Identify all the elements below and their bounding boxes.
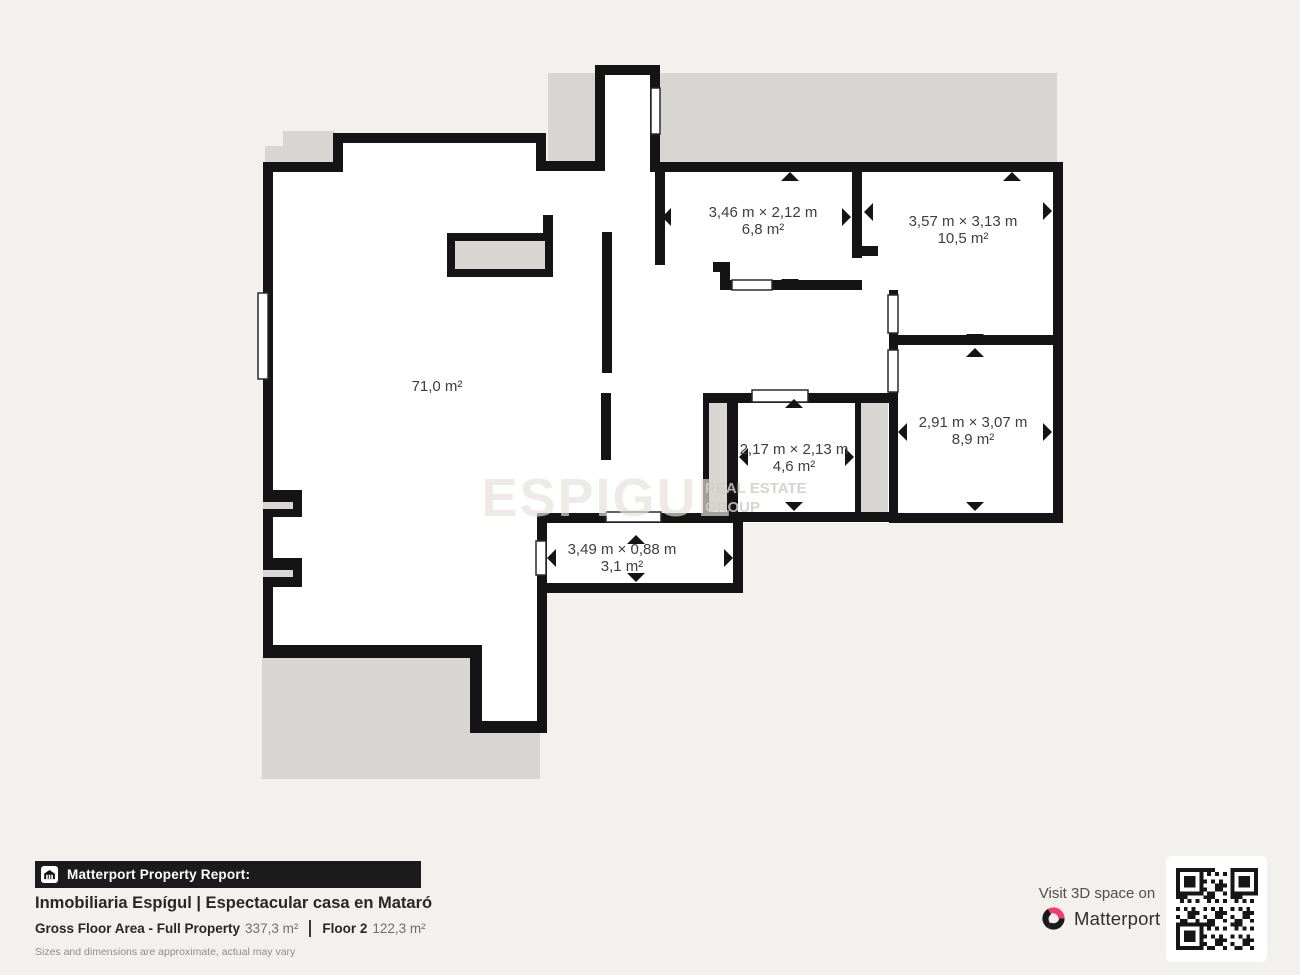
report-header-bar: Matterport Property Report: (35, 861, 421, 888)
gross-area-label: Gross Floor Area - Full Property (35, 921, 240, 936)
room-area: 10,5 m² (938, 230, 989, 247)
property-title: Inmobiliaria Espígul | Espectacular casa… (35, 894, 432, 913)
room-dimensions: 3,46 m × 2,12 m (709, 204, 818, 221)
floor-value: 122,3 m² (372, 921, 425, 936)
room-dimensions: 3,57 m × 3,13 m (909, 213, 1018, 230)
matterport-logo-icon (1040, 905, 1067, 932)
report-bar-label: Matterport Property Report: (67, 867, 250, 882)
visit-3d-label: Visit 3D space on (1038, 885, 1156, 902)
room-area: 6,8 m² (742, 221, 785, 238)
watermark-line2: GROUP (705, 499, 760, 516)
gross-area-value: 337,3 m² (245, 921, 298, 936)
floorplan-drawing: 3,46 m × 2,12 m 6,8 m² 3,57 m × 3,13 m 1… (0, 0, 1300, 975)
watermark-line1: REAL ESTATE (705, 480, 807, 497)
matterport-brand: Matterport (1040, 905, 1160, 932)
floor-label: Floor 2 (322, 921, 367, 936)
room-area: 8,9 m² (952, 431, 995, 448)
room-dimensions: 2,91 m × 3,07 m (919, 414, 1028, 431)
matterport-wordmark: Matterport (1074, 908, 1160, 930)
watermark-brand: ESPIGUL (481, 468, 732, 528)
room-dimensions: 2,17 m × 2,13 m (740, 441, 849, 458)
area-stats-row: Gross Floor Area - Full Property 337,3 m… (35, 920, 426, 937)
property-house-icon (41, 866, 58, 883)
room-dimensions: 3,49 m × 0,88 m (568, 541, 677, 558)
disclaimer-text: Sizes and dimensions are approximate, ac… (35, 946, 295, 958)
matterport-floorplan-report: 3,46 m × 2,12 m 6,8 m² 3,57 m × 3,13 m 1… (0, 0, 1300, 975)
room-area: 71,0 m² (412, 378, 463, 395)
stats-divider (309, 920, 311, 937)
room-area: 4,6 m² (773, 458, 816, 475)
qr-code (1176, 868, 1258, 950)
room-area: 3,1 m² (601, 558, 644, 575)
counter (455, 241, 545, 269)
